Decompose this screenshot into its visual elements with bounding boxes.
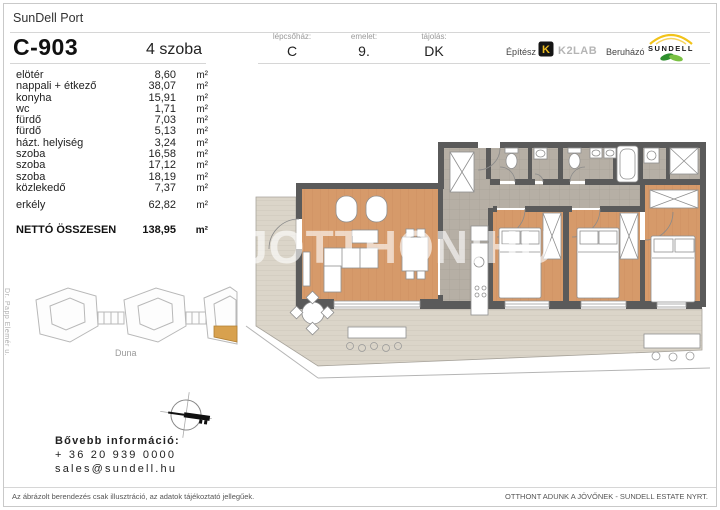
street-label: Dr. Papp Elemér u.	[3, 288, 10, 356]
contact-heading: Bővebb információ:	[55, 435, 180, 447]
contact-email[interactable]: sales@sundell.hu	[55, 463, 180, 475]
disclaimer: Az ábrázolt berendezés csak illusztráció…	[12, 492, 254, 501]
contact-phone[interactable]: + 36 20 939 0000	[55, 449, 180, 461]
contact-block: Bővebb információ: + 36 20 939 0000 sale…	[55, 435, 180, 475]
divider	[4, 487, 716, 488]
floor-plan-sheet: SunDell Port C-903 4 szoba lépcsőház: C …	[0, 0, 720, 510]
river-label: Duna	[115, 348, 137, 358]
floor-plan-drawing	[0, 0, 720, 510]
company-slogan: OTTHONT ADUNK A JÖVŐNEK - SUNDELL ESTATE…	[505, 492, 708, 501]
